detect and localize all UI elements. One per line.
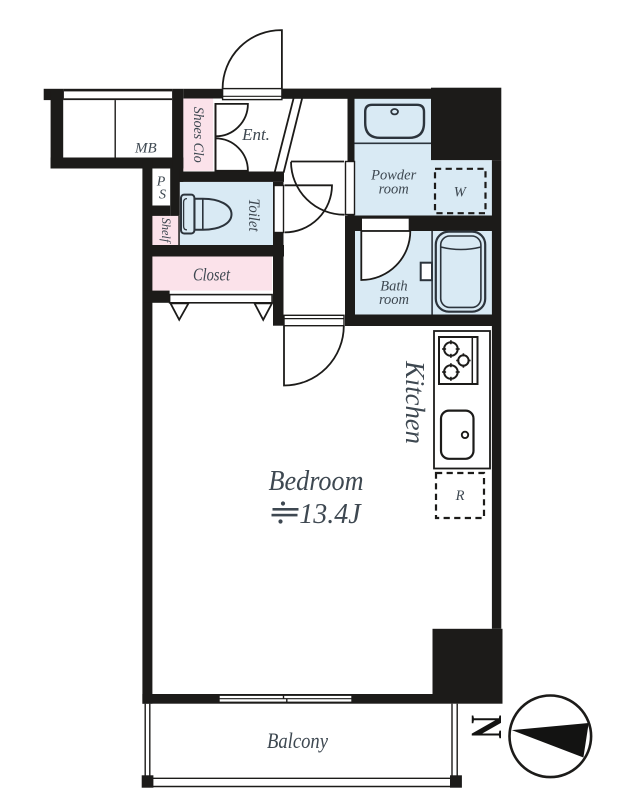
svg-text:MB: MB — [134, 141, 157, 157]
svg-text:W: W — [454, 185, 468, 201]
svg-text:room: room — [379, 292, 409, 308]
svg-text:N: N — [462, 715, 511, 739]
svg-text:Closet: Closet — [193, 265, 231, 285]
svg-text:room: room — [379, 182, 409, 198]
svg-text:R: R — [455, 488, 465, 504]
svg-text:Shoes Clo: Shoes Clo — [190, 107, 206, 163]
svg-text:Shelf: Shelf — [159, 218, 174, 245]
svg-text:Balcony: Balcony — [267, 728, 328, 753]
svg-text:Ent.: Ent. — [241, 125, 270, 144]
svg-text:13.4J: 13.4J — [299, 499, 362, 530]
svg-text:Bedroom: Bedroom — [269, 465, 364, 497]
svg-text:Toilet: Toilet — [245, 199, 262, 233]
svg-text:S: S — [159, 188, 166, 203]
svg-text:Kitchen: Kitchen — [400, 360, 431, 444]
